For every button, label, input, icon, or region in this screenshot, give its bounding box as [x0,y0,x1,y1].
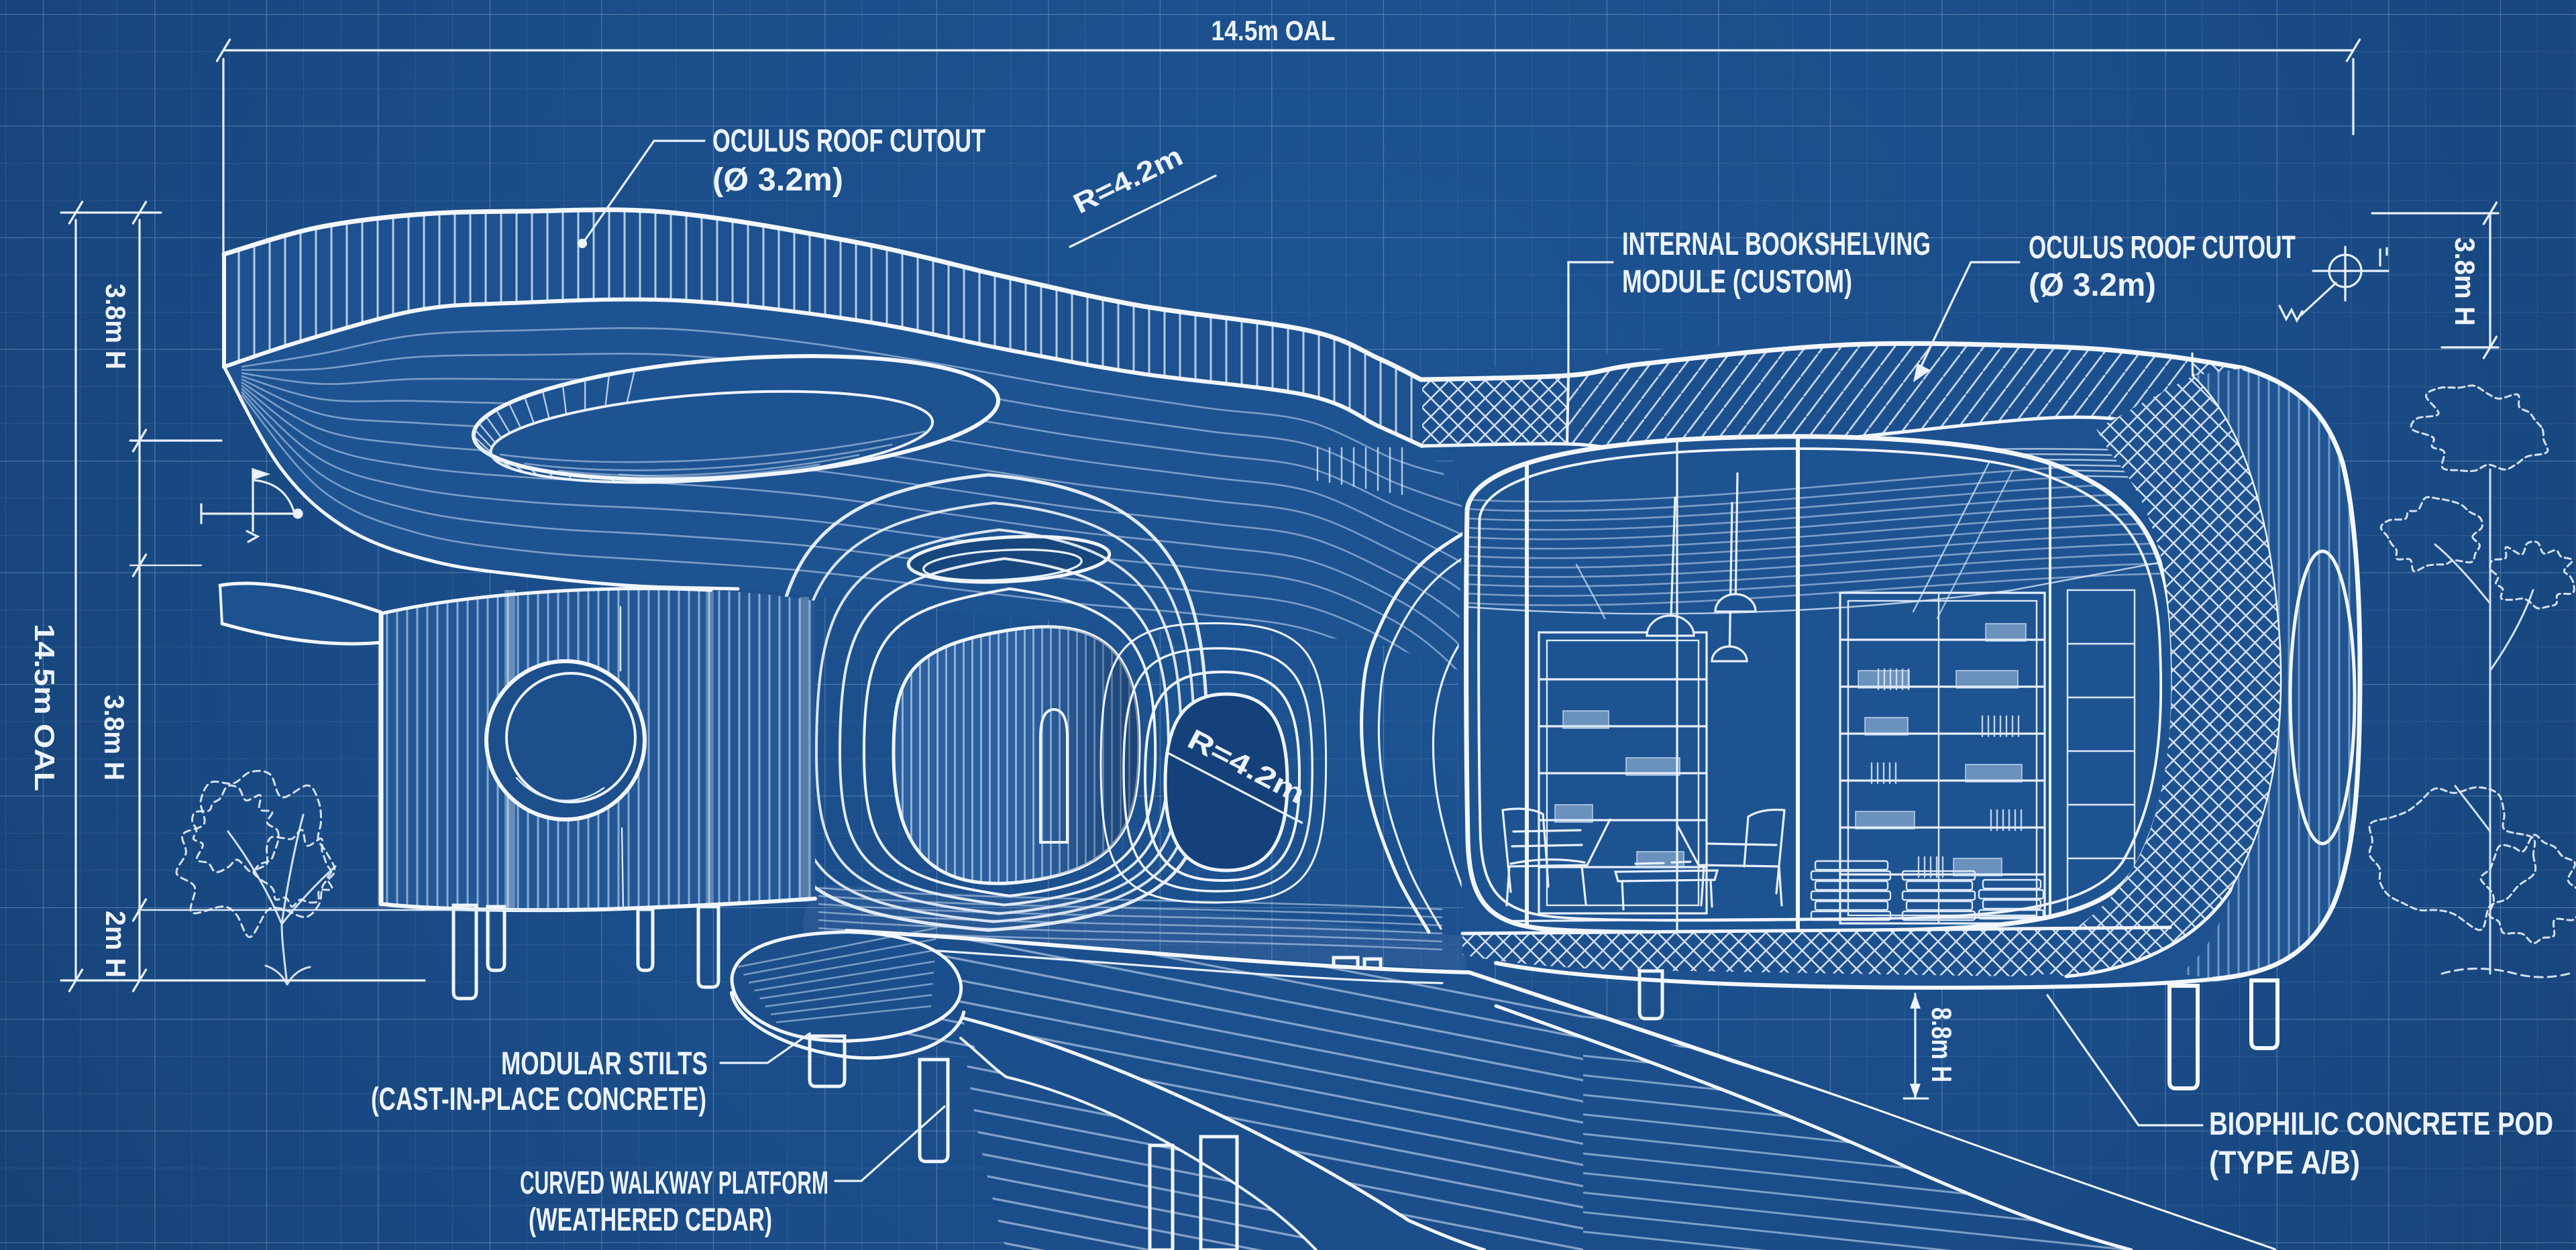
svg-text:BIOPHILIC CONCRETE POD: BIOPHILIC CONCRETE POD [2209,1106,2553,1142]
svg-text:3.8m H: 3.8m H [99,695,130,781]
svg-text:OCULUS ROOF CUTOUT: OCULUS ROOF CUTOUT [712,123,985,159]
svg-text:INTERNAL BOOKSHELVING: INTERNAL BOOKSHELVING [1622,227,1931,262]
svg-text:(Ø 3.2m): (Ø 3.2m) [712,162,843,198]
svg-text:(TYPE A/B): (TYPE A/B) [2209,1145,2360,1181]
svg-text:CURVED WALKWAY PLATFORM: CURVED WALKWAY PLATFORM [520,1166,828,1201]
svg-text:14.5m OAL: 14.5m OAL [29,624,60,791]
svg-text:3.8m H: 3.8m H [2449,237,2481,326]
svg-text:8.8m H: 8.8m H [1926,1007,1957,1082]
svg-text:14.5m OAL: 14.5m OAL [1212,15,1336,46]
svg-text:2m H: 2m H [100,911,131,978]
svg-text:3.8m H: 3.8m H [100,284,131,370]
svg-text:(CAST-IN-PLACE CONCRETE): (CAST-IN-PLACE CONCRETE) [371,1082,706,1117]
svg-text:MODULAR STILTS: MODULAR STILTS [501,1046,708,1082]
svg-text:MODULE (CUSTOM): MODULE (CUSTOM) [1622,264,1852,300]
svg-text:OCULUS ROOF CUTOUT: OCULUS ROOF CUTOUT [2029,230,2296,266]
svg-text:(Ø 3.2m): (Ø 3.2m) [2029,268,2156,303]
svg-text:(WEATHERED CEDAR): (WEATHERED CEDAR) [529,1202,772,1238]
